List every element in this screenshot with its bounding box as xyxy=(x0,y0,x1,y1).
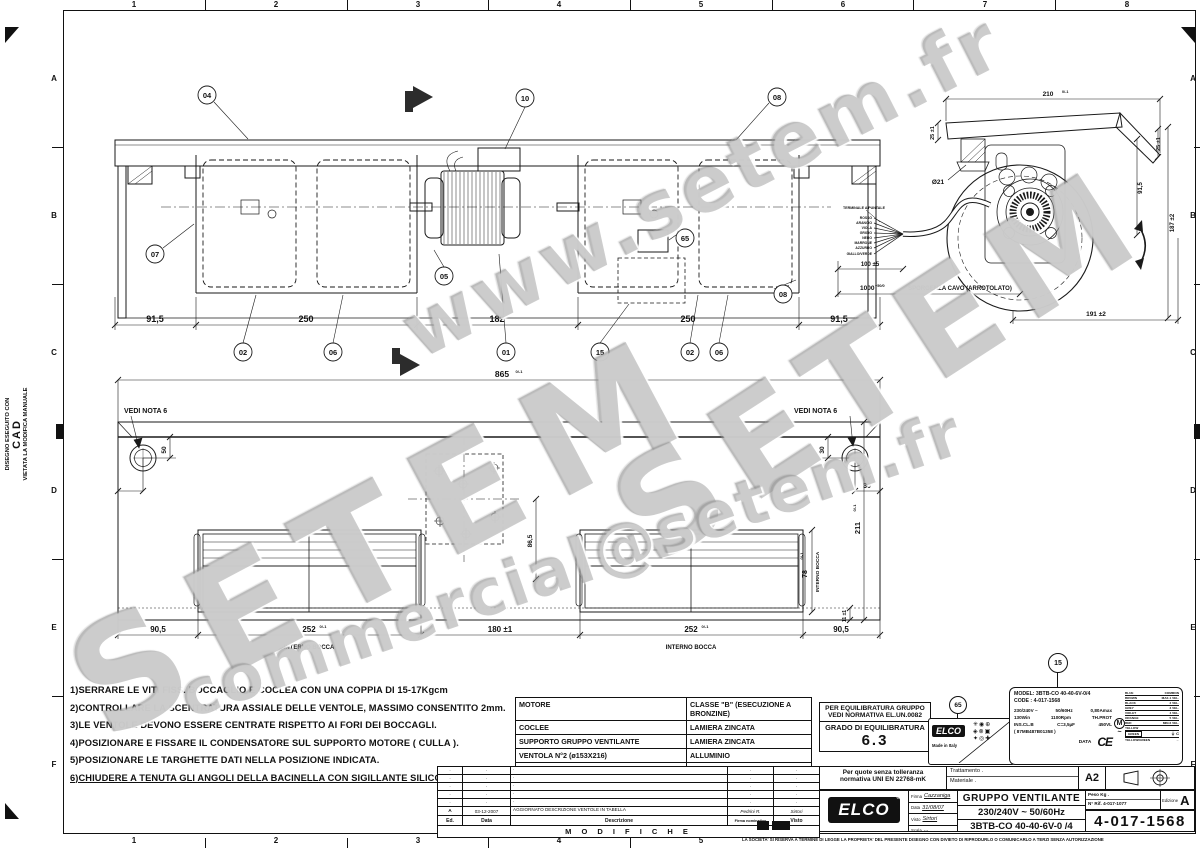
nameplate-spec: TH.PROT xyxy=(1092,715,1112,720)
rev-cell: . xyxy=(727,767,773,774)
wire-row-value: MAX-1 VEL. xyxy=(1162,696,1179,700)
rev-header: Descrizione xyxy=(510,815,727,825)
note-3: 3)LE VENTOLE DEVONO ESSERE CENTRATE RISP… xyxy=(70,717,515,735)
wire-row-value: ⏚ C xyxy=(1171,731,1179,737)
rev-header: Ed. xyxy=(438,815,462,825)
wire-row-value: 2 VEL. xyxy=(1170,701,1179,705)
rev-cell: Pedrini R. xyxy=(727,806,773,815)
wire-label-rosso: ROSSO xyxy=(860,216,873,220)
dim-91-5-left: 91,5 xyxy=(146,314,164,324)
dim-25-left: 25 ±1 xyxy=(930,126,936,140)
wire-row-label: BLUE xyxy=(1125,691,1133,695)
dim-hole-21: Ø21 xyxy=(932,179,945,186)
rev-cell: . xyxy=(462,767,510,774)
elco-made-in-italy-sticker: ELCO Made in Italy ✳◉⊕◈⊗▣✦◎✚ xyxy=(928,718,1015,765)
rev-cell: 03-12-2007 xyxy=(462,806,510,815)
col-label: 3 xyxy=(408,836,428,845)
rev-cell: . xyxy=(438,790,462,798)
signature-box: FirmaCazzaniga Data31/08/07 VistoSirtori… xyxy=(908,790,958,832)
interno-bocca-left: INTERNO BOCCA xyxy=(284,645,335,651)
row-label: C xyxy=(1187,348,1199,357)
rev-cell: . xyxy=(773,782,819,790)
callout-15: 15 xyxy=(596,348,604,357)
drawing-voltage: 230/240V ~ 50/60Hz xyxy=(958,806,1085,820)
materials-table: MOTORE CLASSE "B" (ESECUZIONE A BRONZINE… xyxy=(515,697,812,777)
row-label: D xyxy=(48,486,60,495)
callout-06b: 06 xyxy=(715,348,723,357)
drawing-model: 3BTB-CO 40-40-6V-0 /4 xyxy=(958,820,1085,832)
wire-row-value: MIN-6 VEL. xyxy=(1163,721,1179,725)
balance-line1: PER EQUILIBRATURA GRUPPO xyxy=(820,705,930,712)
rev-cell: . xyxy=(727,790,773,798)
sticker-diagonal-line xyxy=(929,719,1013,763)
rev-cell: . xyxy=(438,798,462,806)
callout-01: 01 xyxy=(502,348,510,357)
dim-100: 100 ±5 xyxy=(861,262,880,268)
rev-cell: . xyxy=(438,774,462,782)
wire-row-label: RED xyxy=(1125,721,1132,725)
wire-row-label: BROWN xyxy=(1125,696,1137,700)
dim-91-5: 91,5 xyxy=(1138,182,1144,194)
ce-mark-icon: CE xyxy=(1097,735,1112,749)
rev-cell: . xyxy=(773,774,819,782)
rev-cell: . xyxy=(727,774,773,782)
row-label: E xyxy=(48,623,60,632)
wire-row-label: YELLOW/GREEN xyxy=(1125,738,1150,742)
view-direction-arrow-top xyxy=(405,86,433,112)
nameplate-wire-table: BLUECOMMON BROWNMAX-1 VEL. BLACK2 VEL. G… xyxy=(1125,691,1179,762)
nameplate-spec: INS.CL.B xyxy=(1014,722,1034,727)
balance-box: PER EQUILIBRATURA GRUPPO VEDI NORMATIVA … xyxy=(819,702,931,752)
spacer-bush xyxy=(957,139,989,171)
firma-label: Firma xyxy=(911,794,922,799)
dim-86-5: 86,5 xyxy=(527,534,534,547)
wire-label-marrone: MARRONE xyxy=(854,241,872,245)
weight-ref-box: Peso Kg . N° Rif. 4-017-1077 xyxy=(1085,790,1161,810)
drawing-number: 4-017-1568 xyxy=(1094,813,1186,830)
wire-row-value: COMMON xyxy=(1165,691,1179,695)
rev-cell: . xyxy=(462,782,510,790)
balance-value: 6.3 xyxy=(820,732,930,749)
projection-box xyxy=(1105,766,1195,790)
wire-row-label: GREY xyxy=(1125,706,1134,710)
wire-label-viola: VIOLA xyxy=(862,226,873,230)
wire-row-label: GREEN xyxy=(1125,731,1142,737)
rev-cell: . xyxy=(462,774,510,782)
col-label: 3 xyxy=(408,0,428,9)
rev-cell: . xyxy=(727,798,773,806)
rev-cell: . xyxy=(462,798,510,806)
wire-label-nero: NERO xyxy=(862,236,872,240)
callout-08b: 08 xyxy=(779,290,787,299)
callout-04: 04 xyxy=(203,91,212,100)
callout-02: 02 xyxy=(239,348,247,357)
center-mark-left xyxy=(56,424,63,439)
col-label: 1 xyxy=(124,0,144,9)
callout-10: 10 xyxy=(521,94,529,103)
rev-cell: . xyxy=(510,767,727,774)
row-label: A xyxy=(48,74,60,83)
dim-30-right-v: 30 xyxy=(819,446,826,454)
dim-865: 865 xyxy=(495,369,509,379)
rev-header: Data xyxy=(462,815,510,825)
rev-cell: Sirtori xyxy=(773,806,819,815)
nameplate-spec: C=3,5µF xyxy=(1057,722,1075,727)
nameplate-spec: 50/60Hz xyxy=(1056,708,1073,713)
dim-180: 180 ±1 xyxy=(488,625,513,634)
dim-252-right: 252 xyxy=(684,625,698,634)
wire-fan xyxy=(874,218,903,254)
wire-label-azzurro: AZZURRO xyxy=(855,246,872,250)
nameplate-spec: 1100Rpm xyxy=(1051,715,1071,720)
rev-cell: . xyxy=(773,798,819,806)
callout-65: 65 xyxy=(681,234,689,243)
dim-90-5-right: 90,5 xyxy=(833,625,849,634)
dim-210: 210 xyxy=(1043,91,1054,98)
note-1: 1)SERRARE LE VITI FISS. BOCCAGLIO E COCL… xyxy=(70,682,515,700)
dim-252-left: 252 xyxy=(302,625,316,634)
dim-90-5-left: 90,5 xyxy=(150,625,166,634)
callout-15-bubble: 15 xyxy=(1048,653,1068,673)
edizione-value: A xyxy=(1180,793,1189,808)
dim-50: 50 xyxy=(161,446,168,454)
wire-label-grigio: GRIGIO xyxy=(860,231,873,235)
materials-cell: LAMIERA ZINCATA xyxy=(686,734,811,748)
col-label: 6 xyxy=(833,0,853,9)
material-row: Materiale . xyxy=(947,777,1078,784)
rev-cell: . xyxy=(438,767,462,774)
nameplate-data-label: DATA xyxy=(1079,740,1092,745)
drawing-title: GRUPPO VENTILANTE xyxy=(958,791,1085,806)
rev-cell: . xyxy=(773,790,819,798)
dim-25-right: 25 ±1 xyxy=(1156,137,1162,151)
rev-cell: . xyxy=(510,774,727,782)
scala-label: Scala xyxy=(911,828,922,833)
first-angle-projection-icon xyxy=(1120,768,1180,788)
dim-211: 211 xyxy=(853,522,862,534)
wire-label-giallo-verde: GIALLO/VERDE xyxy=(847,252,873,256)
rev-cell: AGGIORNATO DESCRIZIONE VENTOLE IN TABELL… xyxy=(510,806,727,815)
rev-cell: A xyxy=(438,806,462,815)
rev-cell: . xyxy=(510,798,727,806)
phase-symbol: ~ xyxy=(1117,729,1121,736)
dim-210-tol: 0/-1 xyxy=(1062,90,1069,94)
format-a2: A2 xyxy=(1085,772,1099,784)
callout-02b: 02 xyxy=(686,348,694,357)
col-label: 4 xyxy=(549,0,569,9)
callout-65-bubble: 65 xyxy=(949,696,967,714)
nameplate-spec: 130Win xyxy=(1014,715,1030,720)
balance-label: GRADO DI EQUILIBRATURA xyxy=(820,723,930,732)
format-box: A2 xyxy=(1078,766,1106,790)
logo-box: ELCO ® xyxy=(819,790,909,832)
materials-cell: COCLEE xyxy=(516,720,686,734)
rev-cell: . xyxy=(462,790,510,798)
wire-row-value: → xyxy=(1176,738,1179,742)
cad-note: DISEGNO ESEGUITO CON CAD VIETATA LA MODI… xyxy=(5,304,49,564)
interno-bocca-vertical: INTERNO BOCCA xyxy=(815,551,821,592)
vedi-nota-right: VEDI NOTA 6 xyxy=(794,408,837,415)
fold-mark-2 xyxy=(772,821,790,830)
dim-78-tol: 0/-1 xyxy=(799,552,804,560)
motor-nameplate: MODEL: 3BTB-CO 40-40-6V-0/4 CODE : 4-017… xyxy=(1009,687,1183,765)
top-view-drawing: 91,5 250 182 250 91,5 04 10 08 07 05 xyxy=(106,82,886,382)
corner-mark-top-left xyxy=(5,27,19,43)
side-view-drawing: ROSSO ARANCIO VIOLA GRIGIO NERO MARRONE … xyxy=(808,83,1193,338)
dim-191: 191 ±2 xyxy=(1086,311,1106,318)
wire-row-label: ORANGE xyxy=(1125,716,1139,720)
bottom-view-drawing: 865 0/-1 VEDI NOTA 6 VEDI NOTA 6 50 30 3… xyxy=(106,358,896,663)
callout-08: 08 xyxy=(773,93,781,102)
rev-cell: . xyxy=(438,782,462,790)
callout-65: 65 xyxy=(954,702,961,709)
capacitor xyxy=(638,230,668,252)
nameplate-spec: 450VL xyxy=(1098,722,1112,727)
materials-cell: VENTOLA N°2 (ø153X216) xyxy=(516,748,686,762)
materials-cell: ALLUMINIO xyxy=(686,748,811,762)
balance-line2: VEDI NORMATIVA EL.UN.0082 xyxy=(820,712,930,719)
wire-row-label: VIOLET xyxy=(1125,711,1136,715)
nameplate-spec: 230/240V ~ xyxy=(1014,708,1038,713)
motor xyxy=(425,171,520,245)
treatment-box: Trattamento . Materiale . xyxy=(946,766,1079,790)
junction-box xyxy=(478,148,520,171)
wire-row-value: 3 VEL. xyxy=(1170,706,1179,710)
col-label: 8 xyxy=(1117,0,1137,9)
cable xyxy=(903,200,990,234)
peso-row: Peso Kg . xyxy=(1086,791,1160,800)
callout-05: 05 xyxy=(440,272,448,281)
tolerance-line1: Per quote senza tolleranza xyxy=(820,769,946,776)
rev-cell: . xyxy=(510,790,727,798)
dim-1000: 1000 xyxy=(860,285,875,292)
dim-30-right-h: 30 xyxy=(863,483,871,490)
row-label: B xyxy=(48,211,60,220)
col-label: 1 xyxy=(124,836,144,845)
row-label: F xyxy=(48,760,60,769)
drawing-number-box: 4-017-1568 xyxy=(1085,810,1195,832)
wire-row-label: BLACK xyxy=(1125,701,1136,705)
interno-bocca-right: INTERNO BOCCA xyxy=(666,645,717,651)
treatment-row: Trattamento . xyxy=(947,767,1078,777)
rotation-arrow xyxy=(1134,220,1145,270)
nameplate-model: MODEL: 3BTB-CO 40-40-6V-0/4 xyxy=(1014,691,1112,697)
dim-211-tol: 0/-1 xyxy=(852,504,857,512)
cad-note-line2: CAD xyxy=(11,304,23,564)
callout-06: 06 xyxy=(329,348,337,357)
fan-wheels-dashed xyxy=(203,160,792,287)
elco-logo-text: ELCO xyxy=(838,800,889,820)
note-2: 2)CONTROLLARE LA SCENTRATURA ASSIALE DEL… xyxy=(70,700,515,718)
data-value: 31/08/07 xyxy=(922,805,944,811)
callout-07: 07 xyxy=(151,250,159,259)
materials-cell: MOTORE xyxy=(516,698,686,720)
cad-note-line3: VIETATA LA MODIFICA MANUALE xyxy=(23,304,29,564)
drawing-sheet: 1 2 3 4 5 6 7 8 1 2 3 4 5 A B C D E F A … xyxy=(0,0,1200,849)
materials-cell: CLASSE "B" (ESECUZIONE A BRONZINE) xyxy=(686,698,811,720)
nameplate-spec: 0,80Amax xyxy=(1091,708,1112,713)
dim-182: 182 xyxy=(489,314,504,324)
callout-15: 15 xyxy=(1054,660,1062,667)
tolerance-box: Per quote senza tolleranza normativa UNI… xyxy=(819,766,947,790)
wire-row-label: YELLOW xyxy=(1125,726,1138,730)
corner-mark-bottom-left xyxy=(5,803,19,819)
wire-label-arancio: ARANCIO xyxy=(856,221,872,225)
dim-11: 11 ±1 xyxy=(842,610,848,622)
row-label: A xyxy=(1187,74,1199,83)
nameplate-code: CODE : 4-017-1568 xyxy=(1014,698,1112,704)
tolerance-line2: normativa UNI EN 22768-mK xyxy=(820,776,946,783)
drawing-title-box: GRUPPO VENTILANTE 230/240V ~ 50/60Hz 3BT… xyxy=(957,790,1086,832)
elco-logo: ELCO ® xyxy=(828,797,900,823)
dim-252-right-tol: 0/-1 xyxy=(702,624,710,629)
edition-box: Edizione A xyxy=(1160,790,1195,810)
visto-label: Visto xyxy=(911,817,920,822)
col-label: 2 xyxy=(266,0,286,9)
motor-symbol: M xyxy=(1114,718,1125,729)
wire-row-value: 5 VEL. xyxy=(1170,716,1179,720)
fold-mark-1 xyxy=(757,821,769,830)
materials-cell: SUPPORTO GRUPPO VENTILANTE xyxy=(516,734,686,748)
note-4: 4)POSIZIONARE E FISSARE IL CONDENSATORE … xyxy=(70,735,515,753)
rev-cell: . xyxy=(727,782,773,790)
data-label: Data xyxy=(911,805,920,810)
cable-label: SPORGENZA CAVO (ARROTOLATO) xyxy=(908,286,1012,292)
terminal-label: TERMINALE A PUNTALE xyxy=(843,206,886,210)
left-inlet xyxy=(194,530,425,612)
rev-cell: . xyxy=(773,767,819,774)
row-label: C xyxy=(48,348,60,357)
nameplate-serial: ( 87MB487B01358 ) xyxy=(1014,729,1056,734)
visto-value: Sirtori xyxy=(922,816,937,822)
rif-row: N° Rif. 4-017-1077 xyxy=(1086,800,1160,806)
vedi-nota-left: VEDI NOTA 6 xyxy=(124,408,167,415)
scala-value: ... xyxy=(924,827,929,833)
col-label: 5 xyxy=(691,0,711,9)
center-mark-right xyxy=(1194,424,1200,439)
registered-mark: ® xyxy=(896,795,901,801)
dim-865-tol: 0/-1 xyxy=(516,369,524,374)
edizione-label: Edizione xyxy=(1161,798,1178,803)
row-label: E xyxy=(1187,623,1199,632)
right-inlet xyxy=(576,530,805,612)
row-label: D xyxy=(1187,486,1199,495)
dim-252-left-tol: 0/-1 xyxy=(320,624,328,629)
col-label: 7 xyxy=(975,0,995,9)
materials-cell: LAMIERA ZINCATA xyxy=(686,720,811,734)
firma-value: Cazzaniga xyxy=(924,793,950,799)
dim-187: 187 ±2 xyxy=(1170,213,1176,232)
rev-cell: . xyxy=(510,782,727,790)
dim-78: 78 xyxy=(802,570,809,578)
wire-row-value: 4 VEL. xyxy=(1170,711,1179,715)
col-label: 2 xyxy=(266,836,286,845)
dim-1000-tol: +50/0 xyxy=(875,284,885,288)
dim-250-left: 250 xyxy=(298,314,313,324)
